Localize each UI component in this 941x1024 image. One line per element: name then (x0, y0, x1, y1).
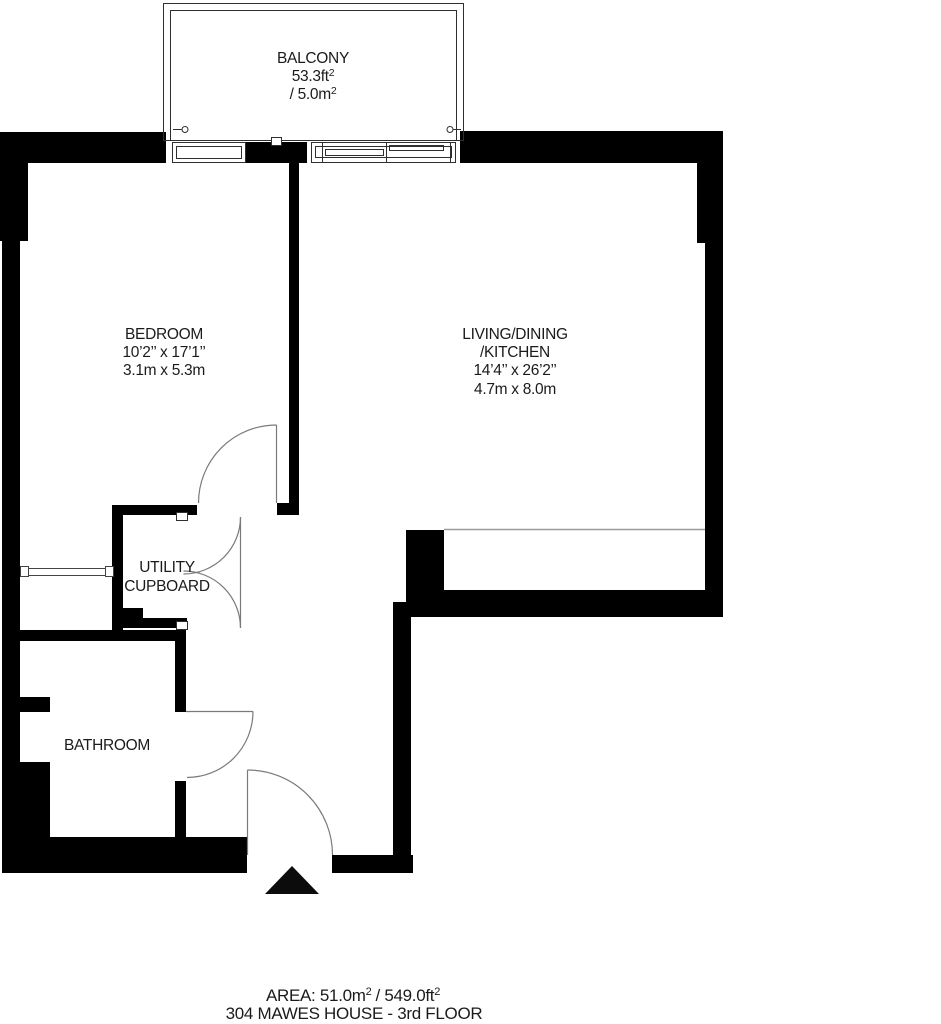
wall-left-upper (0, 132, 28, 241)
footer-address: 304 MAWES HOUSE - 3rd FLOOR (226, 1004, 483, 1023)
wall-top-right (460, 131, 723, 163)
bedroom-door-arc (199, 425, 277, 503)
wall-bathroom-right-upper (175, 630, 186, 712)
bedroom-label: BEDROOM (125, 326, 203, 343)
utility-hinge-block (177, 622, 188, 630)
wall-left-tab (20, 697, 50, 712)
wardrobe-end-cap (106, 567, 114, 577)
floorplan-canvas: BALCONY 53.3ft2 / 5.0m2 BEDROOM 10’2’’ x… (0, 0, 941, 1024)
living-window-slider-left (326, 150, 384, 156)
balcony-area-metric: / 5.0m2 (290, 85, 337, 103)
balcony-drain-icon (182, 127, 188, 133)
wardrobe-end-cap (21, 567, 29, 577)
balcony-threshold-block (272, 138, 282, 146)
floor-plan: BALCONY 53.3ft2 / 5.0m2 BEDROOM 10’2’’ x… (0, 0, 941, 1024)
bedroom-window-pane (177, 147, 242, 159)
entrance-door-arc (248, 770, 333, 855)
wall-living-pier (406, 530, 444, 600)
balcony-drain-icon (447, 127, 453, 133)
wall-bathroom-top (20, 630, 185, 641)
windows (173, 143, 456, 163)
wall-right-upper (697, 163, 723, 243)
balcony-label: BALCONY (277, 50, 349, 67)
living-dims-metric: 4.7m x 8.0m (474, 381, 556, 398)
wall-left (2, 241, 20, 857)
bathroom-label: BATHROOM (64, 737, 150, 754)
wall-hall-right (393, 602, 411, 873)
utility-hinge-block (177, 513, 188, 521)
living-label-line1: LIVING/DINING (462, 326, 567, 343)
wardrobe (21, 567, 114, 577)
bedroom-window (173, 143, 246, 163)
utility-label-line2: CUPBOARD (124, 578, 210, 595)
utility-label-line1: UTILITY (139, 559, 195, 576)
footer-area: AREA: 51.0m2/ 549.0ft2 (266, 986, 440, 1005)
wall-right (705, 243, 723, 617)
wall-bottom-plinth (2, 855, 247, 873)
wall-partition-foot (277, 503, 299, 515)
wall-bathroom-right-lower (175, 781, 186, 837)
wall-utility-bottom-block (112, 608, 143, 628)
wardrobe-front (23, 569, 112, 576)
living-dims-imperial: 14’4’’ x 26’2’’ (473, 362, 556, 379)
bedroom-dims-metric: 3.1m x 5.3m (123, 362, 205, 379)
bedroom-dims-imperial: 10’2’’ x 17’1’’ (122, 344, 205, 361)
entrance-arrow-icon (265, 866, 319, 894)
bathroom-door-arc (187, 712, 253, 778)
doors (184, 425, 333, 855)
balcony-area-imperial: 53.3ft2 (292, 67, 335, 85)
living-label-line2: /KITCHEN (480, 344, 550, 361)
wall-living-bottom (406, 590, 723, 617)
wall-bedroom-living-partition (289, 163, 299, 503)
walls (0, 131, 723, 873)
wall-left-chunk (20, 762, 50, 842)
wall-bathroom-bottom (20, 837, 247, 857)
